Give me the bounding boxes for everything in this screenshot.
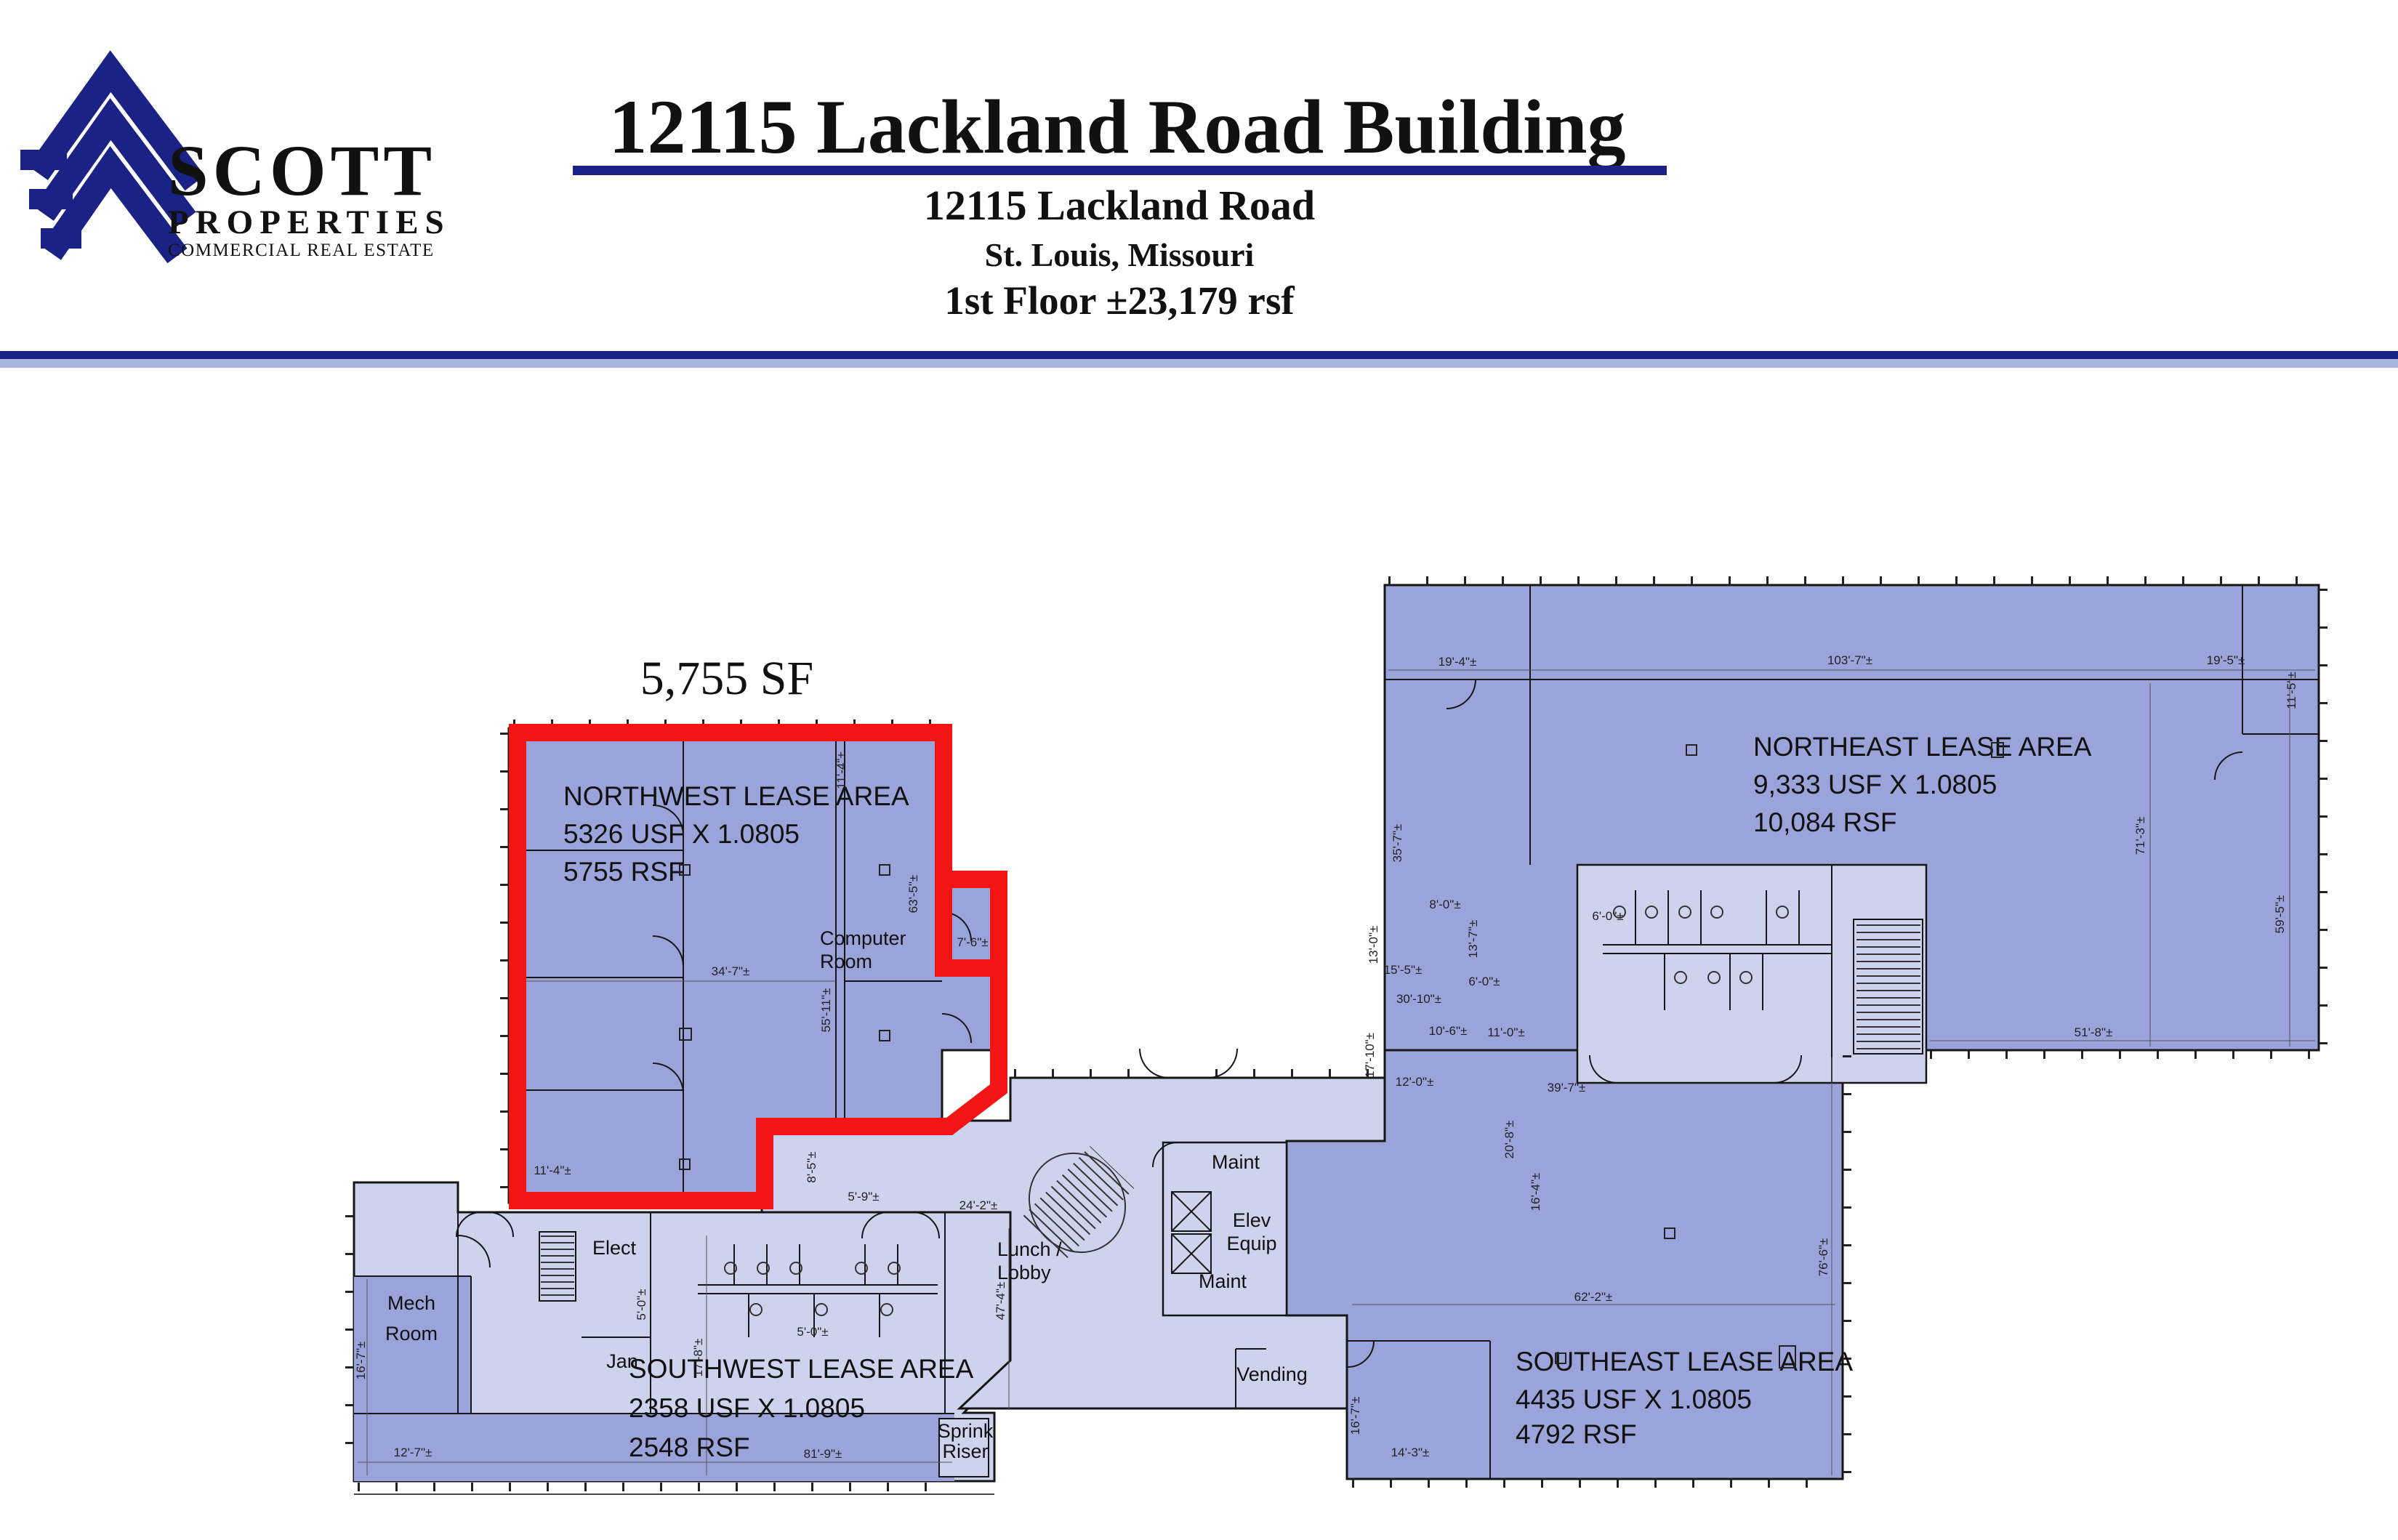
computer-room-label-2: Room [820,951,872,972]
logo: SCOTT PROPERTIES COMMERCIAL REAL ESTATE [20,71,451,260]
mech-room-label-2: Room [385,1323,438,1345]
svg-text:7'-6"±: 7'-6"± [957,935,988,949]
se-lease-usf: 4435 USF X 1.0805 [1516,1384,1752,1414]
svg-text:12'-0"±: 12'-0"± [1396,1075,1434,1089]
svg-text:19'-5"±: 19'-5"± [2207,653,2245,667]
svg-text:62'-2"±: 62'-2"± [1574,1290,1613,1304]
highlight-sf-label: 5,755 SF [640,652,813,705]
svg-text:30'-10"±: 30'-10"± [1396,992,1441,1006]
svg-text:5'-0"±: 5'-0"± [797,1325,828,1339]
svg-text:59'-5"±: 59'-5"± [2273,895,2287,934]
svg-text:11'-5"±: 11'-5"± [2285,672,2298,709]
mech-room-label-1: Mech [387,1292,435,1314]
svg-text:103'-7"±: 103'-7"± [1827,653,1872,667]
jan-label: Jan [606,1350,638,1372]
svg-text:51'-8"±: 51'-8"± [2075,1025,2113,1039]
svg-text:71'-3"±: 71'-3"± [2133,817,2147,855]
ne-lease-name: NORTHEAST LEASE AREA [1753,732,2092,762]
logo-company: SCOTT [168,130,436,211]
svg-text:5'-9"±: 5'-9"± [848,1190,879,1204]
header-titles: 12115 Lackland Road Building 12115 Lackl… [573,84,1667,323]
svg-text:16'-4"±: 16'-4"± [1529,1173,1542,1212]
svg-text:10'-6"±: 10'-6"± [1429,1024,1468,1038]
svg-text:24'-2"±: 24'-2"± [959,1198,998,1212]
svg-text:34'-7"±: 34'-7"± [712,964,750,978]
vending-label: Vending [1236,1363,1308,1385]
maint-lower-label: Maint [1199,1270,1247,1292]
svg-text:12'-7"±: 12'-7"± [394,1446,432,1459]
svg-text:15'-5"±: 15'-5"± [1384,963,1423,977]
page-title: 12115 Lackland Road Building [608,84,1625,169]
nw-lease-rsf: 5755 RSF [563,857,685,887]
svg-text:39'-7"±: 39'-7"± [1548,1081,1586,1094]
svg-text:13'-0"±: 13'-0"± [1367,926,1380,964]
computer-room-label-1: Computer [820,927,906,949]
svg-text:81'-9"±: 81'-9"± [804,1447,842,1461]
divider-light [0,359,2398,368]
se-lease-rsf: 4792 RSF [1516,1419,1637,1449]
svg-text:19'-4"±: 19'-4"± [1439,655,1477,669]
title-underline [573,166,1667,175]
sw-lease-usf: 2358 USF X 1.0805 [629,1393,865,1423]
floor-line: 1st Floor ±23,179 rsf [944,278,1295,323]
lunch-lobby-label-2: Lobby [997,1262,1051,1283]
svg-text:11'-4"±: 11'-4"± [534,1164,571,1177]
svg-text:63'-5"±: 63'-5"± [906,875,920,914]
maint-upper-label: Maint [1212,1151,1260,1173]
ne-lease-usf: 9,333 USF X 1.0805 [1753,770,1997,799]
sprink-riser-label-1: Sprink [938,1420,994,1442]
logo-tagline: COMMERCIAL REAL ESTATE [168,241,435,260]
flyer-page: SCOTT PROPERTIES COMMERCIAL REAL ESTATE … [0,0,2398,1540]
svg-text:17'-8"±: 17'-8"± [691,1339,705,1377]
svg-text:11'-0"±: 11'-0"± [1487,1025,1524,1039]
svg-text:5'-0"±: 5'-0"± [635,1289,648,1320]
logo-properties: PROPERTIES [168,203,451,241]
svg-text:17'-10"±: 17'-10"± [1363,1033,1377,1078]
lunch-lobby-label-1: Lunch / [997,1238,1062,1260]
address-line: 12115 Lackland Road [924,182,1315,229]
nw-lease-usf: 5326 USF X 1.0805 [563,819,800,849]
svg-text:11'-4"±: 11'-4"± [834,751,848,789]
ne-lease-rsf: 10,084 RSF [1753,807,1896,837]
svg-text:35'-7"±: 35'-7"± [1391,824,1404,863]
elev-equip-label-2: Equip [1226,1233,1276,1254]
svg-text:13'-7"±: 13'-7"± [1466,920,1480,959]
svg-text:76'-6"±: 76'-6"± [1816,1238,1830,1277]
svg-text:16'-7"±: 16'-7"± [354,1342,368,1380]
svg-text:47'-4"±: 47'-4"± [994,1282,1007,1321]
sw-lease-name: SOUTHWEST LEASE AREA [629,1354,974,1384]
svg-text:8'-5"±: 8'-5"± [805,1151,818,1182]
elect-label: Elect [592,1237,637,1259]
floor-plan-canvas: SCOTT PROPERTIES COMMERCIAL REAL ESTATE … [0,0,2398,1540]
svg-text:20'-8"±: 20'-8"± [1502,1121,1516,1159]
divider-navy [0,351,2398,359]
svg-text:55'-11"±: 55'-11"± [819,988,833,1033]
svg-text:8'-0"±: 8'-0"± [1429,898,1460,911]
sprink-riser-label-2: Riser [942,1440,988,1462]
svg-text:16'-7"±: 16'-7"± [1348,1397,1362,1435]
sw-lease-rsf: 2548 RSF [629,1432,750,1462]
elev-equip-label-1: Elev [1233,1209,1271,1231]
svg-text:14'-3"±: 14'-3"± [1391,1446,1430,1459]
ne-restroom-core [1577,865,1926,1083]
nw-lease-name: NORTHWEST LEASE AREA [563,781,909,811]
city-line: St. Louis, Missouri [985,236,1255,273]
svg-text:6'-0"±: 6'-0"± [1468,975,1500,988]
svg-text:6'-0"±: 6'-0"± [1592,909,1623,923]
